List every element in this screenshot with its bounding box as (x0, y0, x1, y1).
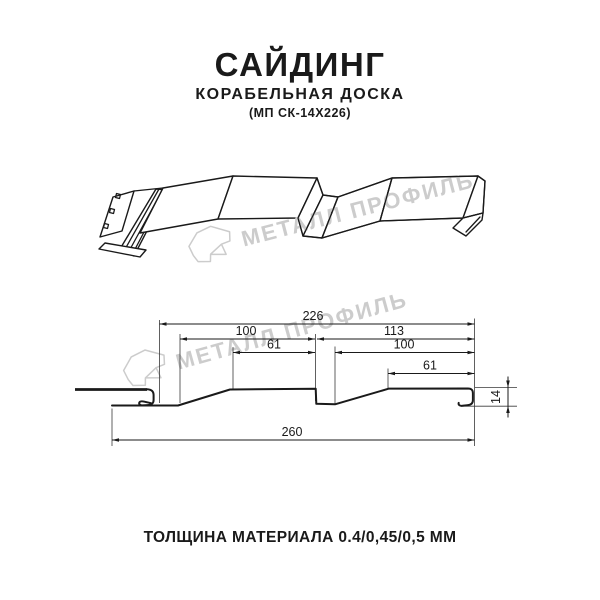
dimension-label-overall-bottom: 260 (282, 425, 303, 439)
dimension-label-profile-height: 14 (489, 390, 503, 404)
dimension-label-left-flat: 61 (267, 338, 281, 352)
brand-watermark-lower: МЕТАЛЛ ПРОФИЛЬ (120, 279, 411, 390)
dimension-label-right-flat-width: 100 (394, 338, 415, 352)
brand-logo-icon (120, 345, 171, 389)
thickness-note: ТОЛЩИНА МАТЕРИАЛА 0.4/0,45/0,5 ММ (0, 529, 600, 547)
dimension-label-overall-top: 226 (303, 309, 324, 323)
dimension-label-right-width: 113 (384, 324, 404, 338)
technical-drawing-canvas: МЕТАЛЛ ПРОФИЛЬ МЕТАЛЛ ПРОФИЛЬ 226 100 11 (0, 0, 600, 600)
brand-watermark-text: МЕТАЛЛ ПРОФИЛЬ (173, 287, 410, 375)
brand-logo-icon (185, 222, 235, 266)
dimension-label-right-flat: 61 (423, 359, 437, 373)
dimension-label-left-width: 100 (236, 324, 257, 338)
